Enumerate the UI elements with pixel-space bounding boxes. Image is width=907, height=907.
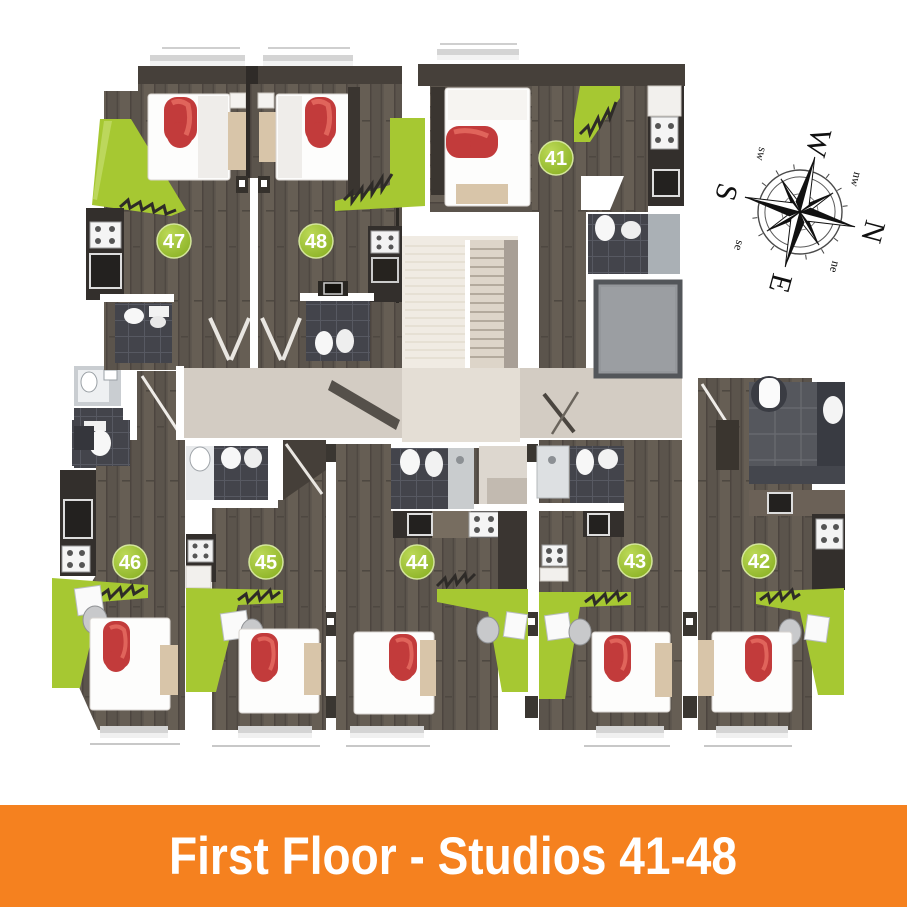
svg-text:41: 41: [545, 148, 567, 170]
svg-text:43: 43: [624, 551, 646, 573]
svg-text:First Floor - Studios 41-48: First Floor - Studios 41-48: [169, 827, 737, 886]
svg-text:44: 44: [406, 552, 429, 574]
svg-text:45: 45: [255, 552, 277, 574]
svg-text:48: 48: [305, 231, 327, 253]
svg-text:46: 46: [119, 552, 141, 574]
svg-text:47: 47: [163, 231, 185, 253]
svg-text:42: 42: [748, 551, 770, 573]
